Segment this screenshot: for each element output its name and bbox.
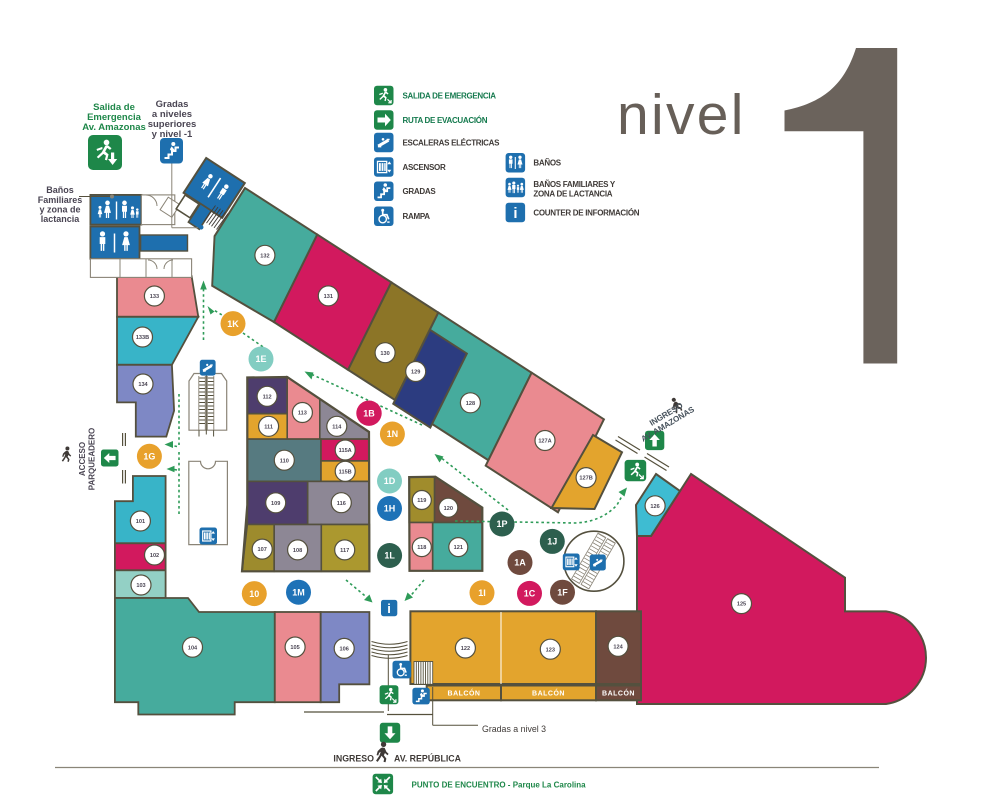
svg-text:101: 101: [136, 519, 145, 525]
svg-text:122: 122: [461, 646, 470, 652]
svg-text:118: 118: [417, 545, 426, 551]
svg-text:116: 116: [337, 501, 346, 507]
svg-text:1E: 1E: [255, 354, 266, 364]
svg-text:133B: 133B: [136, 335, 149, 341]
svg-text:ESCALERAS ELÉCTRICAS: ESCALERAS ELÉCTRICAS: [403, 139, 501, 148]
svg-text:COUNTER DE INFORMACIÓN: COUNTER DE INFORMACIÓN: [533, 208, 639, 217]
svg-text:1L: 1L: [384, 551, 395, 561]
svg-text:1N: 1N: [387, 429, 399, 439]
svg-text:125: 125: [737, 602, 746, 608]
svg-text:119: 119: [417, 498, 426, 504]
svg-text:i: i: [387, 601, 391, 616]
svg-text:112: 112: [263, 394, 272, 400]
svg-text:y nivel -1: y nivel -1: [152, 129, 193, 140]
svg-text:BAÑOS FAMILIARES Y: BAÑOS FAMILIARES Y: [533, 180, 616, 189]
svg-text:BALCÓN: BALCÓN: [448, 689, 481, 698]
svg-text:106: 106: [340, 647, 349, 653]
svg-text:ACCESO: ACCESO: [78, 442, 87, 476]
svg-text:ZONA DE LACTANCIA: ZONA DE LACTANCIA: [533, 189, 612, 198]
svg-text:117: 117: [340, 548, 349, 554]
svg-text:110: 110: [280, 458, 289, 464]
svg-text:i: i: [513, 205, 517, 222]
svg-text:lactancia: lactancia: [41, 214, 81, 224]
svg-text:109: 109: [271, 501, 280, 507]
svg-text:RAMPA: RAMPA: [403, 212, 431, 221]
svg-text:102: 102: [150, 553, 159, 559]
svg-text:105: 105: [290, 645, 299, 651]
svg-text:BAÑOS: BAÑOS: [533, 159, 561, 168]
svg-text:nivel: nivel: [617, 83, 746, 147]
svg-text:1H: 1H: [384, 504, 396, 514]
svg-text:124: 124: [613, 644, 623, 650]
svg-text:1A: 1A: [514, 558, 526, 568]
svg-text:1C: 1C: [524, 589, 536, 599]
svg-text:121: 121: [454, 545, 463, 551]
svg-text:114: 114: [332, 424, 342, 430]
svg-text:1B: 1B: [363, 408, 375, 418]
svg-text:115B: 115B: [339, 469, 352, 475]
svg-text:123: 123: [546, 647, 555, 653]
svg-text:130: 130: [380, 351, 389, 357]
svg-text:1F: 1F: [557, 587, 568, 597]
svg-text:1I: 1I: [478, 588, 486, 598]
svg-text:120: 120: [444, 506, 453, 512]
svg-text:132: 132: [260, 253, 269, 259]
svg-text:133: 133: [150, 294, 159, 300]
svg-text:1M: 1M: [292, 587, 305, 597]
svg-text:107: 107: [258, 547, 267, 553]
svg-text:129: 129: [411, 370, 420, 376]
svg-text:Baños: Baños: [46, 185, 74, 195]
svg-text:1G: 1G: [143, 452, 155, 462]
svg-text:SALIDA DE EMERGENCIA: SALIDA DE EMERGENCIA: [403, 91, 497, 100]
svg-text:BALCÓN: BALCÓN: [602, 689, 635, 698]
svg-text:113: 113: [298, 411, 307, 417]
svg-text:Av. Amazonas: Av. Amazonas: [82, 122, 146, 133]
svg-text:PARQUEADERO: PARQUEADERO: [88, 428, 97, 491]
svg-text:103: 103: [136, 583, 145, 589]
svg-text:127A: 127A: [538, 439, 551, 445]
svg-text:PUNTO DE ENCUENTRO - Parque La: PUNTO DE ENCUENTRO - Parque La Carolina: [412, 781, 587, 790]
svg-text:Familiares: Familiares: [38, 195, 83, 205]
svg-text:10: 10: [249, 589, 259, 599]
svg-text:127B: 127B: [579, 476, 592, 482]
svg-text:1J: 1J: [547, 537, 557, 547]
svg-text:GRADAS: GRADAS: [403, 187, 437, 196]
svg-text:RUTA DE EVACUACIÓN: RUTA DE EVACUACIÓN: [403, 116, 488, 125]
svg-text:115A: 115A: [339, 448, 352, 454]
svg-text:104: 104: [188, 645, 198, 651]
svg-text:BALCÓN: BALCÓN: [532, 689, 565, 698]
svg-text:AV. REPÚBLICA: AV. REPÚBLICA: [394, 753, 462, 764]
svg-text:128: 128: [466, 401, 475, 407]
svg-text:ASCENSOR: ASCENSOR: [403, 163, 446, 172]
svg-text:1D: 1D: [384, 476, 396, 486]
svg-text:1K: 1K: [227, 319, 239, 329]
svg-text:INGRESO: INGRESO: [333, 754, 374, 764]
svg-text:131: 131: [324, 294, 333, 300]
svg-text:108: 108: [293, 548, 302, 554]
svg-text:126: 126: [650, 504, 659, 510]
svg-text:y zona de: y zona de: [39, 205, 80, 215]
svg-text:134: 134: [138, 382, 148, 388]
svg-text:Gradas a nivel 3: Gradas a nivel 3: [482, 724, 546, 734]
svg-text:111: 111: [264, 424, 273, 430]
svg-text:1P: 1P: [496, 519, 507, 529]
